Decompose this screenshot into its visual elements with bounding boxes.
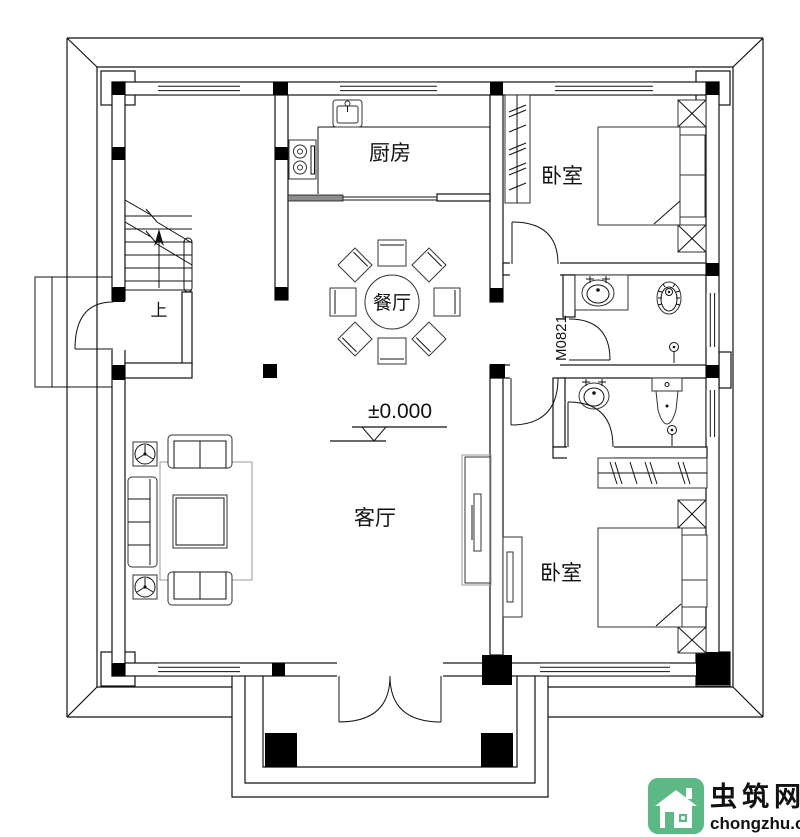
nightstand-x-icon <box>678 100 706 127</box>
elevation-label: ±0.000 <box>368 400 432 423</box>
wardrobe-bedroom2 <box>598 458 707 488</box>
room-label-living: 客厅 <box>354 507 396 530</box>
window-living-south <box>158 663 240 676</box>
nightstand-x-icon <box>678 225 706 252</box>
tv-cabinet-living <box>462 455 491 585</box>
toilet-icon <box>652 378 682 424</box>
west-porch-steps <box>35 277 113 387</box>
sofa-long <box>128 477 157 567</box>
floorplan-drawing: 厨房 上 餐厅 ±0.000 <box>0 0 800 837</box>
window-stairhall-north <box>158 82 240 95</box>
kitchen-sliding-door <box>288 195 437 201</box>
sofa-loveseat-top <box>168 435 232 468</box>
kitchen: 厨房 <box>288 100 490 201</box>
stove-icon <box>289 140 316 179</box>
watermark-site-url: chongzhu.cn <box>710 814 800 833</box>
floorplan-canvas: 厨房 上 餐厅 ±0.000 <box>0 0 800 837</box>
tv-cabinet-bedroom2 <box>503 537 522 617</box>
nightstand-x-icon <box>678 627 706 653</box>
window-bedroom2-south <box>540 663 670 676</box>
room-label-bedroom2: 卧室 <box>540 562 582 585</box>
living-room: 客厅 <box>128 435 491 605</box>
bathroom-lower <box>579 378 682 446</box>
stair-up-arrow-icon <box>154 229 164 288</box>
dining-set: 餐厅 <box>330 240 460 364</box>
room-label-kitchen: 厨房 <box>369 142 411 165</box>
nightstand-x-icon <box>678 500 706 528</box>
bed-bedroom1 <box>598 127 705 225</box>
room-label-dining: 餐厅 <box>373 292 411 314</box>
door-bedroom2 <box>511 378 558 425</box>
door-bedroom1 <box>512 222 558 264</box>
door-code-label: M0821 <box>553 315 570 361</box>
bathroom-sink-icon <box>575 275 628 310</box>
squat-toilet-icon <box>657 282 681 314</box>
plant-icon <box>133 442 157 466</box>
bed-bedroom2 <box>598 528 707 627</box>
coffee-table <box>173 495 227 548</box>
window-bath2-east <box>706 390 719 437</box>
door-bath1 <box>569 319 610 360</box>
bedroom-top-right: 卧室 <box>505 95 706 252</box>
kitchen-sink-icon <box>333 100 362 127</box>
elevation-marker: ±0.000 <box>330 400 447 441</box>
shower-head-icon <box>670 343 679 364</box>
door-side-entrance <box>75 302 113 349</box>
window-kitchen-north <box>340 82 437 95</box>
room-label-bedroom1: 卧室 <box>541 165 583 188</box>
window-bath1-east <box>706 293 719 347</box>
watermark-logo: 虫筑网 chongzhu.cn <box>648 778 800 834</box>
plant-icon <box>133 575 157 599</box>
shower-head-icon <box>668 426 677 447</box>
stairs-up-label: 上 <box>151 301 168 320</box>
watermark-site-name: 虫筑网 <box>710 781 800 812</box>
sofa-loveseat-bottom <box>168 572 232 605</box>
bathroom-sink-icon <box>579 379 609 409</box>
wardrobe-bedroom1 <box>505 95 530 203</box>
door-main-entrance <box>339 676 441 722</box>
bedroom-bottom-right: 卧室 <box>503 458 707 653</box>
window-bedroom1-north <box>555 82 653 95</box>
